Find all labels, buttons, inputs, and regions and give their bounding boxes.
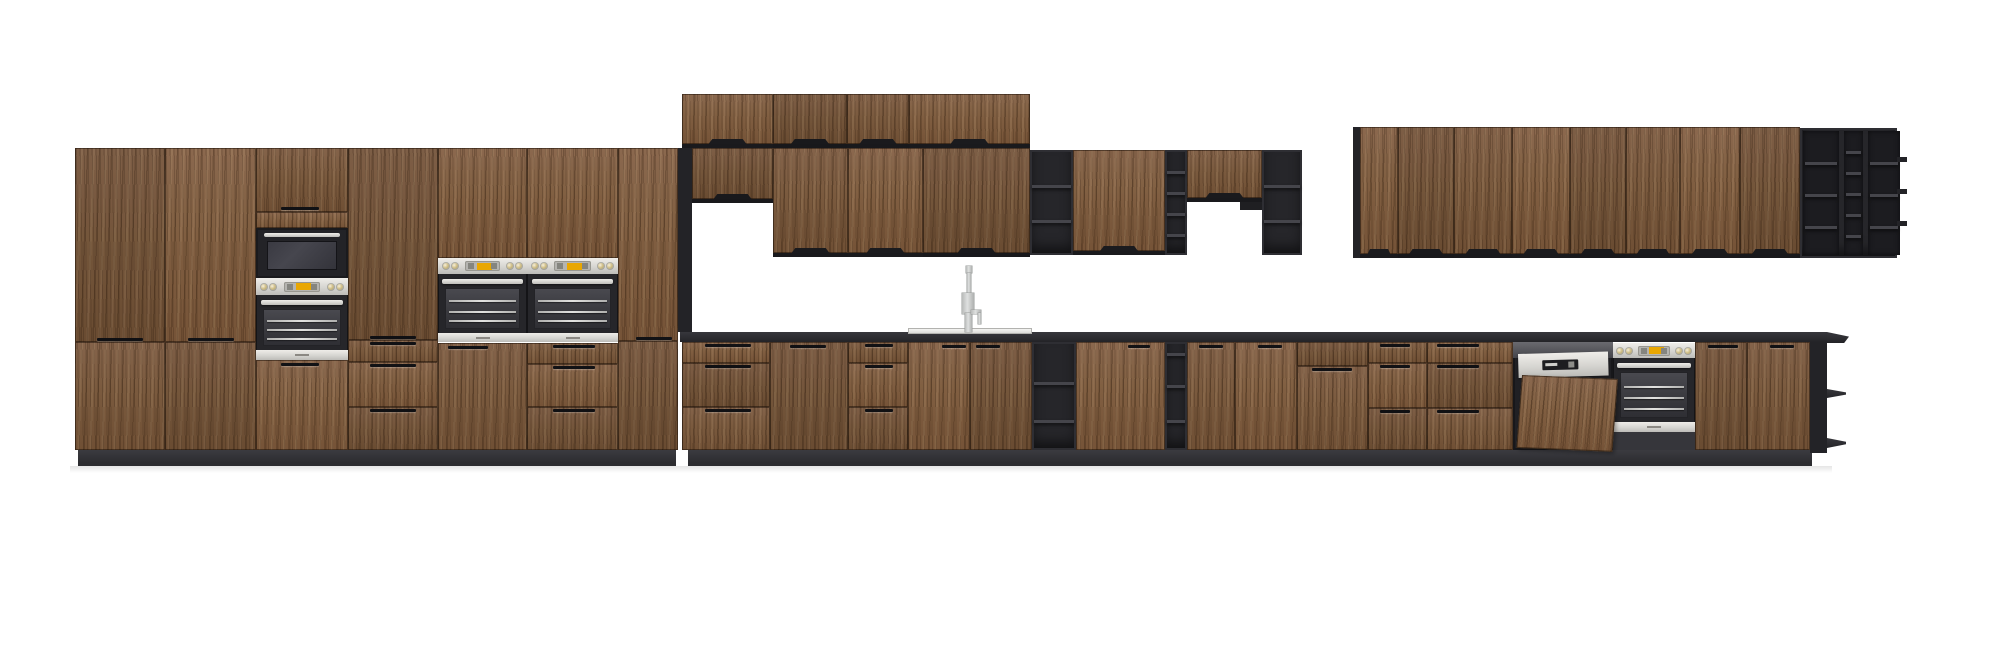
floor-shadow <box>70 466 1832 473</box>
mount-bracket <box>1240 202 1262 210</box>
drawer-front[interactable] <box>348 362 438 407</box>
upper-cabinet-door[interactable] <box>682 94 773 148</box>
oven-upper-door[interactable] <box>527 148 618 258</box>
display-icon <box>1568 361 1574 367</box>
base-door[interactable] <box>1235 342 1297 450</box>
brand-mark <box>1647 426 1661 428</box>
appliance-tower-top-door[interactable] <box>256 148 348 212</box>
oven-knob <box>1685 348 1691 354</box>
door-handle <box>1128 345 1150 348</box>
drawer-front[interactable] <box>527 364 618 407</box>
base-drawer-stack[interactable] <box>682 342 770 450</box>
oven-rack <box>267 320 337 322</box>
oven-cavity <box>534 288 611 329</box>
oven-knob <box>261 284 267 290</box>
tall-drawer-stack[interactable] <box>527 343 618 450</box>
oven-knob <box>607 263 613 269</box>
oven-knob <box>452 263 458 269</box>
door-handle <box>281 207 319 210</box>
oven-upper-door[interactable] <box>438 148 527 258</box>
shelf <box>1167 385 1185 388</box>
shelf <box>1167 171 1185 174</box>
oven-rack <box>1624 386 1684 388</box>
kitchen-elevation-canvas <box>0 0 2000 662</box>
tall-cabinet-door[interactable] <box>165 148 256 342</box>
drawer-front[interactable] <box>1368 342 1427 363</box>
microwave-screen <box>267 241 337 270</box>
door-handle <box>281 363 319 366</box>
drawer-front[interactable] <box>1368 363 1427 408</box>
shelf <box>1870 162 1898 165</box>
base-drawer-stack[interactable] <box>1368 342 1427 450</box>
wall-oven[interactable] <box>527 258 618 342</box>
oven-control-panel <box>1613 343 1695 358</box>
base-door[interactable] <box>1695 342 1747 450</box>
microwave[interactable] <box>256 228 348 278</box>
oven-rack <box>449 300 516 302</box>
plinth <box>688 450 1812 466</box>
tall-cabinet-door[interactable] <box>75 148 165 342</box>
door-handle <box>1100 246 1138 251</box>
base-door[interactable] <box>770 342 848 450</box>
tall-drawer-stack[interactable] <box>348 340 438 450</box>
oven-handle <box>1617 363 1691 368</box>
door-handle <box>867 248 905 253</box>
display-icon <box>468 263 474 269</box>
brand-mark <box>476 337 490 339</box>
drawer-front[interactable] <box>1427 342 1513 363</box>
tall-cabinet-lower-door[interactable] <box>618 341 678 450</box>
open-base-unit[interactable] <box>1032 342 1076 450</box>
dishwasher-display <box>1542 359 1578 370</box>
oven-rack <box>538 311 607 313</box>
wall-oven[interactable] <box>438 258 527 342</box>
oven-knob <box>1626 348 1632 354</box>
appliance-tower-lower-door[interactable] <box>256 360 348 450</box>
brand-mark <box>566 337 580 339</box>
faucet-column[interactable] <box>965 313 972 332</box>
oven-control-panel <box>438 258 527 274</box>
door-handle <box>859 139 896 144</box>
drawer-handle <box>370 364 416 367</box>
drawer-front[interactable] <box>1297 342 1368 366</box>
upper-short-door[interactable] <box>692 148 773 203</box>
drawer-front[interactable] <box>1427 363 1513 408</box>
door-handle <box>942 345 966 348</box>
upper-cabinet-door[interactable] <box>773 148 848 257</box>
oven-control-panel <box>527 258 618 274</box>
sink-base-door[interactable] <box>908 342 970 450</box>
drawer-front[interactable] <box>527 343 618 364</box>
oven-rack <box>538 320 607 322</box>
door-handle <box>790 345 826 348</box>
door-handle <box>1752 249 1788 254</box>
open-shelf-unit[interactable] <box>1262 150 1302 255</box>
door-handle <box>958 248 996 253</box>
oven-knob <box>541 263 547 269</box>
display-icon <box>311 284 317 290</box>
base-door[interactable] <box>1747 342 1810 450</box>
oven-rack <box>1624 397 1684 399</box>
oven-knob <box>1676 348 1682 354</box>
shelf <box>1846 235 1861 238</box>
drawer-handle <box>553 409 595 412</box>
shelf <box>1167 234 1185 237</box>
drawer-handle <box>705 365 751 368</box>
drawer-handle <box>553 366 595 369</box>
upper-cabinet-door[interactable] <box>1360 127 1398 258</box>
oven-rack <box>449 311 516 313</box>
door-handle <box>188 338 234 341</box>
end-panel <box>1810 342 1827 453</box>
display-amber <box>477 263 492 270</box>
shelf-column <box>1803 131 1839 255</box>
plinth <box>78 450 676 466</box>
door-handle <box>370 336 416 339</box>
shelf <box>1846 193 1861 196</box>
door-handle <box>1637 249 1669 254</box>
faucet-tip[interactable] <box>966 266 972 273</box>
shelf <box>1870 194 1898 197</box>
drawer-handle <box>865 344 893 347</box>
oven-rack <box>267 338 337 340</box>
oven-handle <box>261 300 344 305</box>
tall-cabinet-lower-door[interactable] <box>75 342 165 450</box>
upper-cabinet-door[interactable] <box>1680 127 1740 258</box>
shelf <box>1805 162 1837 165</box>
door-handle <box>791 139 829 144</box>
drawer-handle <box>1437 365 1479 368</box>
oven-lower-door[interactable] <box>438 343 527 450</box>
oven-bottom-trim <box>1613 422 1695 432</box>
display-icon <box>1661 348 1667 354</box>
shelf-edge <box>1897 221 1907 226</box>
shelf <box>1805 194 1837 197</box>
drawer-front[interactable] <box>527 407 618 450</box>
drawer-front[interactable] <box>848 342 908 363</box>
drawer-handle <box>370 409 416 412</box>
drawer-front[interactable] <box>682 342 770 363</box>
drawer-handle <box>865 409 893 412</box>
oven-knob <box>328 284 334 290</box>
end-open-shelf[interactable] <box>1827 389 1846 398</box>
dishwasher-door-panel[interactable] <box>1516 375 1618 452</box>
countertop[interactable] <box>680 332 1827 342</box>
shelf-column <box>1844 131 1863 255</box>
shelf <box>1032 220 1071 223</box>
oven-knob <box>270 284 276 290</box>
open-shelf-narrow[interactable] <box>1165 150 1187 255</box>
shelf <box>1167 353 1185 356</box>
display-amber <box>296 283 311 290</box>
display-icon <box>557 263 563 269</box>
oven-display <box>554 261 590 271</box>
door-handle <box>1466 249 1501 254</box>
door-handle <box>1524 249 1559 254</box>
dishwasher-control-panel <box>1518 351 1609 378</box>
drawer-handle <box>1437 410 1479 413</box>
drawer-front[interactable] <box>1368 408 1427 450</box>
upper-cabinet-door[interactable] <box>1073 150 1165 255</box>
door-handle <box>1206 193 1244 198</box>
faucet-lever-drop[interactable] <box>978 313 981 324</box>
shelf <box>1264 185 1300 188</box>
drawer-handle <box>705 344 751 347</box>
display-text <box>1545 363 1557 366</box>
door-handle <box>1692 249 1728 254</box>
base-drawer-stack[interactable] <box>1427 342 1513 450</box>
drawer-handle <box>705 409 751 412</box>
drawer-front[interactable] <box>1297 366 1368 450</box>
drawer-front[interactable] <box>348 407 438 450</box>
drawer-front[interactable] <box>848 407 908 450</box>
drawer-handle <box>865 365 893 368</box>
oven-knob <box>598 263 604 269</box>
display-icon <box>1641 348 1647 354</box>
drawer-handle <box>1437 344 1479 347</box>
oven-bottom-trim <box>256 350 348 360</box>
open-shelf-grid[interactable] <box>1800 128 1897 258</box>
door-handle <box>1368 249 1391 254</box>
tall-cabinet-door[interactable] <box>348 148 438 340</box>
tall-cabinet-lower-door[interactable] <box>165 342 256 450</box>
upper-cabinet-door[interactable] <box>1740 127 1800 258</box>
drawer-front[interactable] <box>848 363 908 407</box>
open-shelf-unit[interactable] <box>1030 150 1073 255</box>
drawer-handle <box>1380 365 1410 368</box>
base-door[interactable] <box>1076 342 1165 450</box>
oven-cavity <box>1620 372 1688 418</box>
microwave-handle <box>264 233 340 237</box>
door-handle <box>714 194 752 199</box>
door-handle <box>951 139 989 144</box>
oven-cavity <box>263 309 341 346</box>
oven-knob <box>516 263 522 269</box>
oven-rack <box>538 300 607 302</box>
shelf <box>1167 420 1185 423</box>
upper-cabinet-door[interactable] <box>847 94 909 148</box>
display-icon <box>287 284 293 290</box>
oven-bottom-trim <box>438 333 527 342</box>
shelf <box>1167 213 1185 216</box>
display-icon <box>491 263 497 269</box>
oven-rack <box>267 329 337 331</box>
upper-cabinet-door[interactable] <box>1626 127 1680 258</box>
oven-control-panel <box>256 278 348 295</box>
door-handle <box>1581 249 1615 254</box>
oven-display <box>465 261 501 271</box>
upper-cabinet-door[interactable] <box>1570 127 1626 258</box>
display-icon <box>582 263 588 269</box>
drawer-handle <box>1380 410 1410 413</box>
countertop-end[interactable] <box>1827 332 1849 343</box>
tall-cabinet-door[interactable] <box>618 148 678 341</box>
drawer-handle <box>1380 344 1410 347</box>
door-handle <box>448 346 488 349</box>
oven-display <box>1638 346 1671 356</box>
oven-cavity <box>445 288 520 329</box>
drawer-front[interactable] <box>682 407 770 450</box>
sink-base-door[interactable] <box>970 342 1032 450</box>
door-handle <box>709 139 747 144</box>
drawer-handle <box>1312 368 1352 371</box>
open-shelf-narrow[interactable] <box>1165 342 1187 450</box>
appliance-tower-filler <box>256 212 348 228</box>
upper-cabinet-door[interactable] <box>773 94 847 148</box>
base-door[interactable] <box>1187 342 1235 450</box>
shelf <box>1846 151 1861 154</box>
shelf <box>1264 220 1300 223</box>
upper-short-door[interactable] <box>1187 150 1262 202</box>
end-open-shelf[interactable] <box>1827 438 1846 448</box>
door-handle <box>1258 345 1282 348</box>
door-handle <box>1770 345 1794 348</box>
shelf <box>1846 172 1861 175</box>
dishwasher[interactable] <box>1513 342 1613 450</box>
drawer-door-unit[interactable] <box>1297 342 1368 450</box>
shelf <box>1846 214 1861 217</box>
base-drawer-stack[interactable] <box>848 342 908 450</box>
upper-cabinet-door[interactable] <box>1398 127 1454 258</box>
shelf <box>1870 226 1898 229</box>
door-handle <box>1708 345 1738 348</box>
oven-knob <box>1617 348 1623 354</box>
upper-cabinet-door[interactable] <box>1512 127 1570 258</box>
oven-display <box>284 282 321 292</box>
oven-handle <box>532 279 614 284</box>
oven-knob <box>532 263 538 269</box>
shelf <box>1034 420 1074 423</box>
door-handle <box>1199 345 1223 348</box>
oven-knob <box>337 284 343 290</box>
upper-cabinet-door[interactable] <box>1454 127 1512 258</box>
tower-wall-oven[interactable] <box>256 278 348 360</box>
drawer-front[interactable] <box>348 340 438 362</box>
door-handle <box>976 345 1000 348</box>
brand-mark <box>295 354 309 356</box>
display-amber <box>567 263 582 270</box>
oven-knob <box>507 263 513 269</box>
upper-cabinet-door[interactable] <box>848 148 923 257</box>
door-handle <box>792 248 830 253</box>
built-under-oven[interactable] <box>1613 343 1695 432</box>
shelf <box>1805 226 1837 229</box>
upper-cabinet-door[interactable] <box>909 94 1030 148</box>
door-handle <box>1409 249 1443 254</box>
oven-base-trim <box>1613 432 1695 450</box>
open-column-unit[interactable] <box>678 148 692 332</box>
oven-handle <box>442 279 522 284</box>
drawer-handle <box>370 342 416 345</box>
drawer-front[interactable] <box>682 363 770 407</box>
faucet-neck[interactable] <box>967 273 971 295</box>
shelf-edge <box>1897 189 1907 194</box>
shelf <box>1032 185 1071 188</box>
shelf <box>1167 192 1185 195</box>
shelf-column <box>1868 131 1900 255</box>
door-handle <box>636 337 672 340</box>
side-panel <box>1353 127 1360 258</box>
oven-rack <box>1624 408 1684 410</box>
upper-cabinet-door[interactable] <box>923 148 1030 257</box>
drawer-handle <box>553 345 595 348</box>
oven-rack <box>449 320 516 322</box>
door-handle <box>97 338 143 341</box>
shelf <box>1034 382 1074 385</box>
drawer-front[interactable] <box>1427 408 1513 450</box>
oven-bottom-trim <box>527 333 618 342</box>
oven-knob <box>443 263 449 269</box>
shelf-edge <box>1897 157 1907 162</box>
